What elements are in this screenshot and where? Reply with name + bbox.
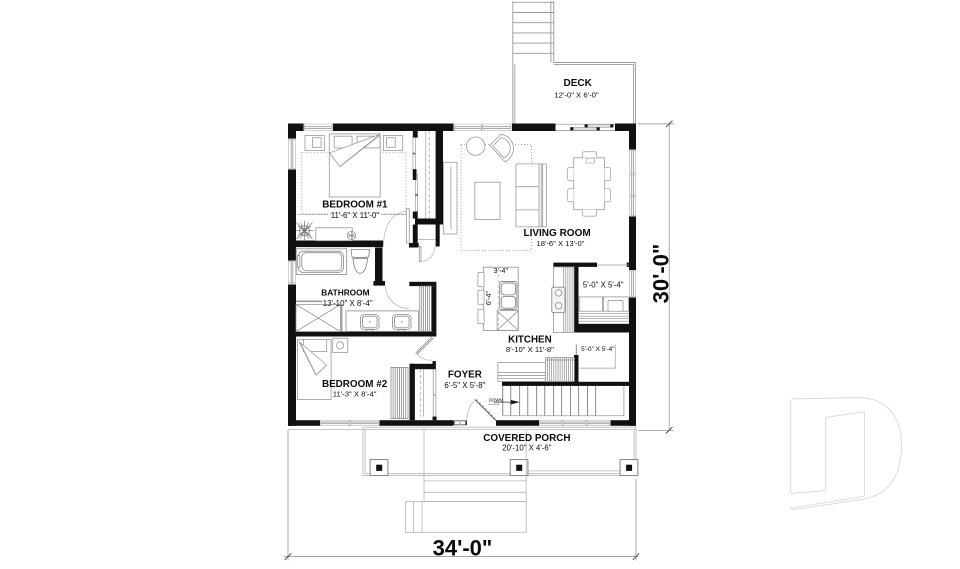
svg-text:3'-4": 3'-4" <box>494 266 509 275</box>
svg-text:20'-10" X 4'-6": 20'-10" X 4'-6" <box>502 444 551 453</box>
svg-text:30'-0": 30'-0" <box>649 244 674 304</box>
svg-text:DOWN: DOWN <box>489 397 503 402</box>
svg-text:LIVING ROOM: LIVING ROOM <box>523 228 590 239</box>
svg-text:BATHROOM: BATHROOM <box>321 287 369 297</box>
svg-text:13'-10" X 8'-4": 13'-10" X 8'-4" <box>323 299 373 308</box>
svg-text:8'-10" X 11'-8": 8'-10" X 11'-8" <box>506 345 554 354</box>
svg-text:12'-0" X 6'-0": 12'-0" X 6'-0" <box>554 91 599 100</box>
svg-text:5'-0" X 5'-4": 5'-0" X 5'-4" <box>583 280 624 289</box>
svg-text:COVERED PORCH: COVERED PORCH <box>483 433 570 444</box>
svg-text:FOYER: FOYER <box>448 370 482 381</box>
svg-text:BEDROOM #1: BEDROOM #1 <box>322 200 388 211</box>
svg-text:18'-6" X 13'-0": 18'-6" X 13'-0" <box>537 239 585 248</box>
svg-text:11'-6" X 11'-0": 11'-6" X 11'-0" <box>331 211 380 220</box>
svg-text:6'-4": 6'-4" <box>485 291 493 306</box>
svg-text:6'-5" X 5'-8": 6'-5" X 5'-8" <box>444 381 485 390</box>
svg-text:5'-0" X 5'-4": 5'-0" X 5'-4" <box>581 346 614 353</box>
svg-text:11'-3" X 8'-4": 11'-3" X 8'-4" <box>333 389 377 398</box>
svg-text:DECK: DECK <box>564 78 593 89</box>
svg-text:34'-0": 34'-0" <box>433 536 493 561</box>
svg-text:KITCHEN: KITCHEN <box>508 334 552 345</box>
